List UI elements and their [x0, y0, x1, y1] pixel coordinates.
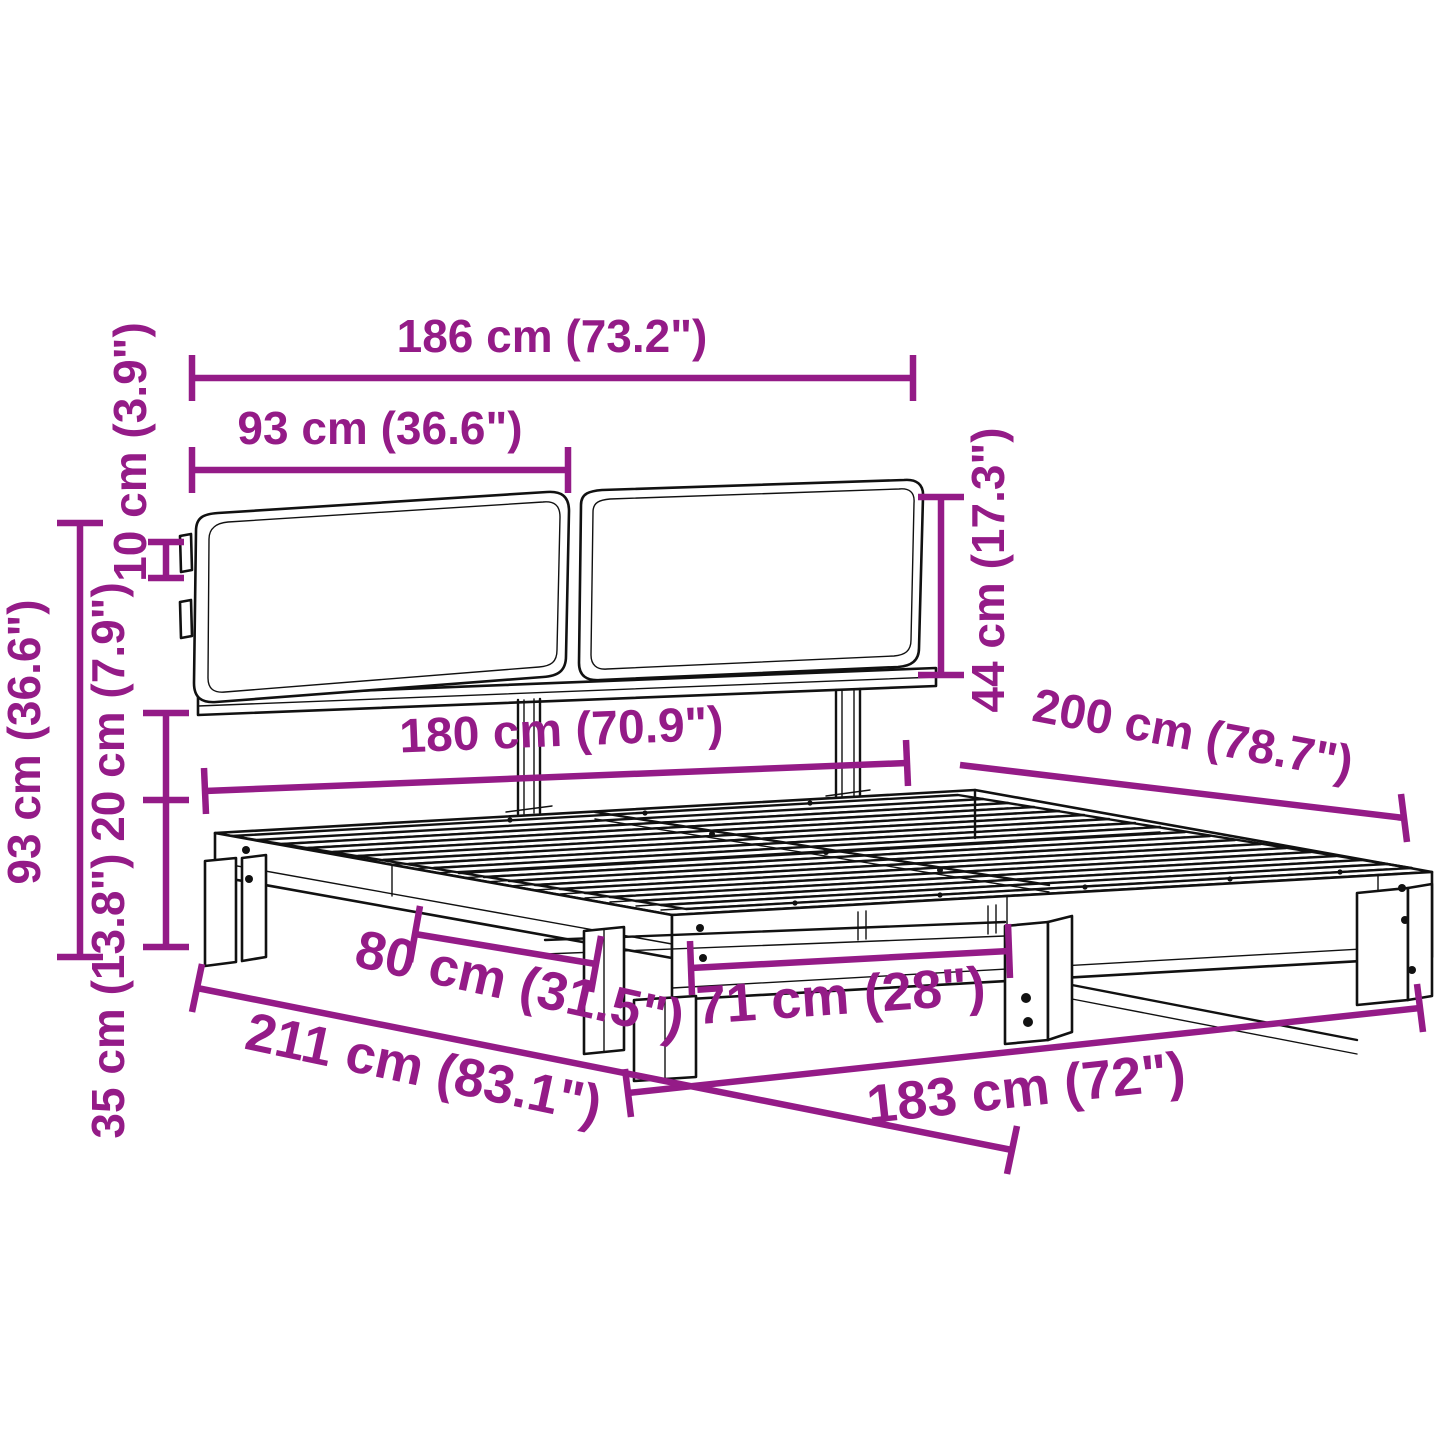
label-total-height: 93 cm (36.6"): [0, 599, 50, 884]
headboard-cushion-left: [194, 492, 569, 702]
label-cushion-width: 93 cm (36.6"): [237, 402, 522, 454]
diagram-canvas: 186 cm (73.2") 93 cm (36.6") 44 cm (17.3…: [0, 0, 1445, 1445]
leg-head-left-board1: [205, 858, 236, 966]
headboard-cushion-right: [579, 480, 923, 680]
dim-cushion-height: [918, 497, 964, 675]
label-cushion-height: 44 cm (17.3"): [962, 427, 1014, 712]
dim-frame-height-and-clearance: [143, 713, 189, 947]
label-cushion-rail-overlap: 10 cm (3.9"): [104, 322, 156, 582]
label-inner-width: 180 cm (70.9"): [398, 698, 724, 764]
cushion-mount-clips: [180, 534, 192, 638]
label-frame-height: 20 cm (7.9"): [82, 582, 134, 842]
label-outer-width: 183 cm (72"): [864, 1041, 1188, 1135]
label-headboard-total-width: 186 cm (73.2"): [397, 310, 708, 362]
label-bed-length: 200 cm (78.7"): [1029, 679, 1358, 790]
label-underbed-clearance: 35 cm (13.8"): [82, 853, 134, 1138]
leg-front-right: [1357, 888, 1408, 1005]
leg-head-left-board2: [242, 855, 266, 961]
bed-dimension-diagram: 186 cm (73.2") 93 cm (36.6") 44 cm (17.3…: [0, 0, 1445, 1445]
